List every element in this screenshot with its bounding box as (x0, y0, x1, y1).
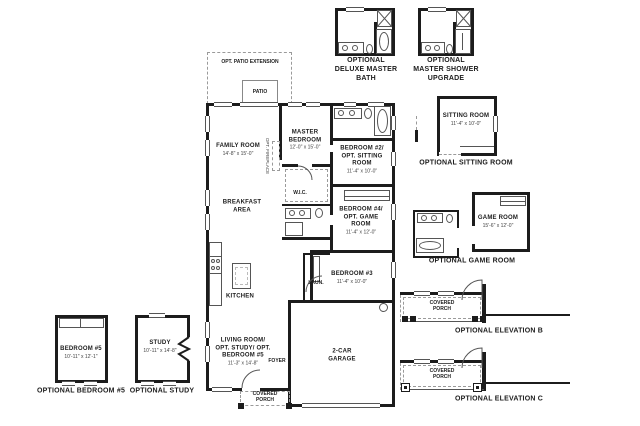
window-marker (391, 204, 396, 220)
opt-fireplace-label: OPT. FIREPLACE (264, 138, 270, 174)
wall-segment (282, 164, 298, 167)
toilet-icon (366, 44, 373, 54)
porch-label: COVERED PORCH (249, 391, 281, 404)
window-marker (346, 7, 364, 12)
window-marker (438, 291, 454, 296)
window-marker (306, 102, 320, 107)
island-detail (235, 267, 248, 285)
toilet-icon (446, 44, 453, 54)
window-marker (493, 116, 498, 132)
wic-label: W.I.C. (293, 190, 307, 196)
patio-label: PATIO (253, 89, 268, 95)
window-marker (205, 322, 210, 338)
wall-segment (482, 352, 486, 391)
inset-caption: OPTIONAL ELEVATION B (455, 328, 543, 337)
toilet-icon (364, 108, 372, 119)
window-marker (163, 381, 176, 386)
porch-post-icon (410, 316, 416, 322)
patio-door-marker (240, 102, 278, 107)
window-marker (391, 116, 396, 130)
window-marker (205, 346, 210, 362)
laundry-label: LAUN. (308, 280, 323, 286)
foyer-label: FOYER (268, 358, 285, 364)
window-marker (438, 359, 454, 364)
window-marker (391, 262, 396, 278)
porch-edge-line (460, 146, 494, 147)
inset-caption: OPTIONAL DELUXE MASTER BATH (332, 57, 400, 83)
closet-icon (59, 318, 104, 328)
porch-post-icon (286, 403, 292, 409)
inset-caption: OPTIONAL ELEVATION C (455, 396, 543, 405)
window-marker (391, 152, 396, 166)
shower-x-icon (377, 10, 392, 27)
burner-icon (211, 259, 215, 263)
burner-icon (216, 266, 220, 270)
window-marker (205, 214, 210, 230)
bedroom3-label: BEDROOM #311'-4" x 10'-0" (330, 271, 374, 285)
wall-segment (415, 130, 418, 142)
study-label: STUDY10'-11" x 14'-8" (137, 340, 183, 354)
sink-icon (299, 210, 305, 216)
burner-icon (211, 266, 215, 270)
inset-caption: OPTIONAL SITTING ROOM (419, 160, 513, 169)
sink-icon (342, 45, 348, 51)
sink-icon (338, 110, 344, 116)
closet-shelf-line (345, 196, 389, 197)
porch-post-dot (404, 386, 407, 389)
kitchen-label: KITCHEN (220, 293, 260, 301)
toilet-icon (446, 214, 453, 223)
wall-segment (288, 300, 395, 303)
porch-post-icon (472, 316, 478, 322)
wall-segment (486, 314, 570, 316)
sink-icon (421, 215, 427, 221)
porch-post-icon (238, 403, 244, 409)
wall-segment (282, 204, 330, 206)
inset-caption: OPTIONAL BEDROOM #5 (37, 388, 125, 397)
closet-divider-line (80, 318, 81, 328)
porch-edge-line (402, 389, 484, 390)
sink-icon (349, 110, 355, 116)
porch-label: COVERED PORCH (426, 300, 458, 313)
wall-segment (330, 184, 392, 187)
master-bedroom-label: MASTER BEDROOM12'-0" x 15'-0" (287, 129, 323, 150)
living-room-label: LIVING ROOM/ OPT. STUDY/ OPT. BEDROOM #5… (213, 338, 273, 367)
wall-segment (330, 152, 333, 187)
porch-post-icon (402, 316, 408, 322)
bedroom2-label: BEDROOM #2/ OPT. SITTING ROOM11'-4" x 10… (340, 146, 384, 175)
window-marker (205, 190, 210, 206)
window-marker (84, 381, 97, 386)
wall-segment (282, 237, 330, 240)
door-swing (298, 166, 312, 180)
water-heater-icon (379, 303, 388, 312)
tub-basin-icon (419, 241, 441, 250)
inset-caption: OPTIONAL STUDY (130, 388, 195, 397)
sink-icon (434, 45, 440, 51)
window-marker (212, 387, 232, 392)
opt-fireplace-outline (272, 141, 280, 171)
window-marker (62, 381, 75, 386)
shower-x-icon (456, 10, 471, 27)
shower-icon (285, 222, 303, 236)
wall-segment (305, 253, 330, 255)
family-room-label: FAMILY ROOM14'-8" x 15'-0" (215, 143, 261, 157)
inset-caption: OPTIONAL MASTER SHOWER UPGRADE (412, 57, 480, 83)
window-marker (414, 359, 430, 364)
bedroom4-label: BEDROOM #4/ OPT. GAME ROOM11'-4" x 12'-0… (333, 207, 389, 236)
sink-icon (431, 215, 437, 221)
window-marker (428, 7, 446, 12)
porch-post-icon (480, 316, 486, 322)
dashed-line (416, 116, 417, 130)
wall-segment (486, 382, 570, 384)
door-swing (242, 370, 260, 388)
opt-patio-extension-label: OPT. PATIO EXTENSION (221, 59, 278, 65)
window-marker (149, 313, 165, 318)
walkin-shower-icon (455, 29, 471, 54)
toilet-icon (315, 208, 323, 218)
tub-basin-icon (379, 32, 389, 51)
window-marker (141, 381, 154, 386)
shower-door-line (462, 33, 463, 50)
window-marker (205, 140, 210, 156)
closet-shelf-line (501, 201, 525, 202)
garage-door-marker (302, 403, 380, 408)
burner-icon (216, 259, 220, 263)
dashed-line (400, 295, 401, 322)
wall-opening (455, 228, 461, 248)
wall-segment (392, 103, 395, 407)
window-marker (414, 291, 430, 296)
floor-plan-canvas: OPTIONAL DELUXE MASTER BATH OPTIONAL MAS… (0, 0, 640, 426)
sink-icon (352, 45, 358, 51)
bedroom5-label: BEDROOM #510'-11" x 12'-1" (58, 346, 104, 360)
wall-segment (333, 138, 392, 141)
dashed-line (439, 154, 461, 155)
porch-label: COVERED PORCH (426, 368, 458, 381)
game-room-label: GAME ROOM15'-6" x 12'-0" (475, 215, 521, 229)
window-marker (205, 116, 210, 132)
sink-icon (289, 210, 295, 216)
sink-icon (425, 45, 431, 51)
tub-basin-icon (377, 109, 388, 133)
breakfast-label: BREAKFAST AREA (221, 200, 263, 215)
window-marker (288, 102, 302, 107)
wall-segment (303, 253, 305, 300)
window-marker (214, 102, 232, 107)
porch-post-dot (476, 386, 479, 389)
inset-caption: OPTIONAL GAME ROOM (429, 258, 515, 267)
window-marker (344, 102, 356, 107)
sitting-room-label: SITTING ROOM11'-4" x 10'-0" (441, 113, 491, 127)
garage-label: 2-CAR GARAGE (324, 349, 360, 364)
